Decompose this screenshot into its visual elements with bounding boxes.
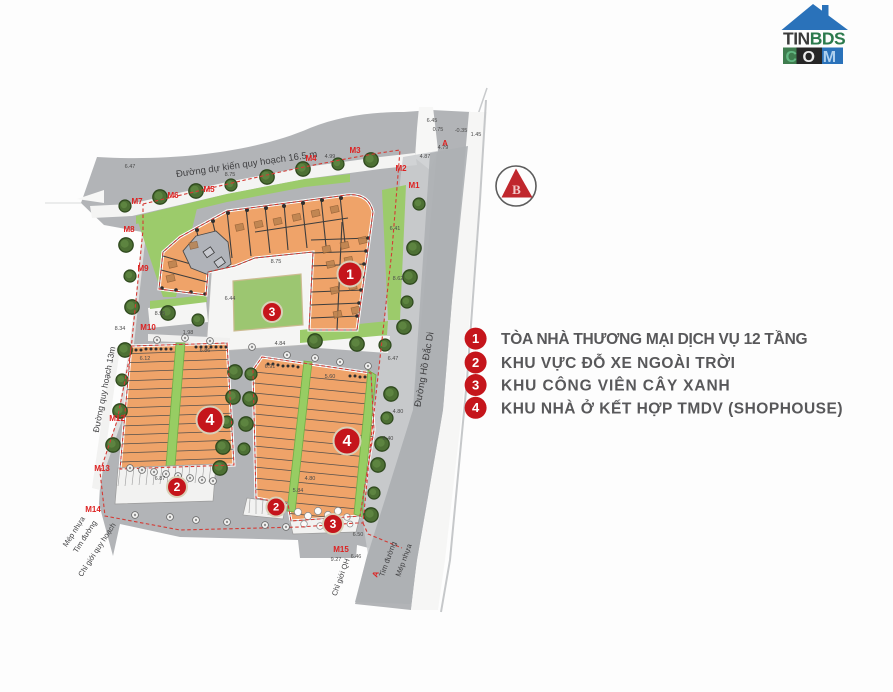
svg-text:COM: COM [786, 49, 837, 66]
svg-text:6.40: 6.40 [383, 436, 394, 442]
svg-text:TÒA NHÀ THƯƠNG MẠI DỊCH VỤ 12: TÒA NHÀ THƯƠNG MẠI DỊCH VỤ 12 TẦNG [501, 330, 808, 348]
svg-text:8.75: 8.75 [271, 259, 282, 265]
svg-text:2: 2 [273, 502, 279, 514]
svg-text:6.45: 6.45 [427, 118, 438, 124]
svg-text:4: 4 [343, 433, 352, 450]
svg-text:M4: M4 [305, 154, 317, 163]
svg-text:Chỉ giới QH: Chỉ giới QH [330, 557, 352, 597]
svg-text:2: 2 [472, 355, 479, 370]
svg-text:M15: M15 [333, 545, 349, 554]
svg-text:8.34: 8.34 [115, 326, 126, 332]
svg-text:0.75: 0.75 [433, 127, 444, 133]
svg-text:9.27: 9.27 [331, 557, 342, 563]
svg-text:4: 4 [472, 400, 480, 415]
svg-text:-0.35: -0.35 [455, 128, 468, 134]
svg-text:M1: M1 [408, 181, 420, 190]
svg-text:6.46: 6.46 [351, 554, 362, 560]
svg-text:M13: M13 [94, 464, 110, 473]
svg-text:M5: M5 [203, 185, 215, 194]
svg-text:KHU NHÀ Ở KẾT HỢP TMDV (SHOPHO: KHU NHÀ Ở KẾT HỢP TMDV (SHOPHOUSE) [501, 399, 843, 417]
svg-text:M6: M6 [167, 191, 179, 200]
svg-text:4.99: 4.99 [325, 154, 336, 160]
svg-text:KHU VỰC ĐỖ XE NGOÀI TRỜI: KHU VỰC ĐỖ XE NGOÀI TRỜI [501, 354, 735, 372]
svg-text:6.47: 6.47 [125, 164, 136, 170]
svg-text:3: 3 [330, 517, 337, 531]
svg-text:6.86: 6.86 [200, 348, 211, 354]
svg-text:4: 4 [206, 412, 215, 429]
svg-text:3: 3 [472, 377, 479, 392]
svg-text:4.87: 4.87 [420, 154, 431, 160]
svg-text:M2: M2 [395, 164, 407, 173]
svg-text:6.87: 6.87 [155, 476, 166, 482]
svg-text:8.75: 8.75 [225, 172, 236, 178]
svg-text:M8: M8 [123, 225, 135, 234]
svg-text:M14: M14 [85, 505, 101, 514]
svg-text:M3: M3 [349, 146, 361, 155]
svg-text:M10: M10 [140, 323, 156, 332]
svg-text:4.79: 4.79 [438, 145, 449, 151]
svg-text:6.50: 6.50 [353, 532, 364, 538]
svg-text:M9: M9 [137, 264, 149, 273]
svg-text:4.84: 4.84 [275, 341, 286, 347]
svg-text:1.98: 1.98 [183, 330, 194, 336]
svg-text:TINBDS: TINBDS [783, 29, 845, 49]
svg-text:1.45: 1.45 [471, 132, 482, 138]
svg-text:8.95: 8.95 [155, 311, 166, 317]
svg-text:8.62: 8.62 [393, 276, 404, 282]
svg-text:6.41: 6.41 [390, 226, 401, 232]
svg-text:3: 3 [269, 305, 276, 319]
svg-text:6.12: 6.12 [140, 356, 151, 362]
svg-text:1: 1 [346, 266, 354, 282]
svg-text:4.80: 4.80 [305, 476, 316, 482]
svg-text:6.91: 6.91 [265, 364, 276, 370]
svg-text:6.44: 6.44 [225, 296, 236, 302]
svg-text:5.84: 5.84 [293, 488, 304, 494]
svg-text:6.47: 6.47 [388, 356, 399, 362]
svg-text:4.80: 4.80 [393, 409, 404, 415]
svg-text:M12: M12 [109, 414, 125, 423]
svg-text:B: B [512, 182, 521, 197]
svg-text:5.60: 5.60 [325, 374, 336, 380]
svg-text:KHU CÔNG VIÊN CÂY XANH: KHU CÔNG VIÊN CÂY XANH [501, 377, 731, 395]
svg-text:1: 1 [472, 331, 479, 346]
svg-text:M7: M7 [131, 197, 143, 206]
svg-text:2: 2 [174, 480, 181, 494]
